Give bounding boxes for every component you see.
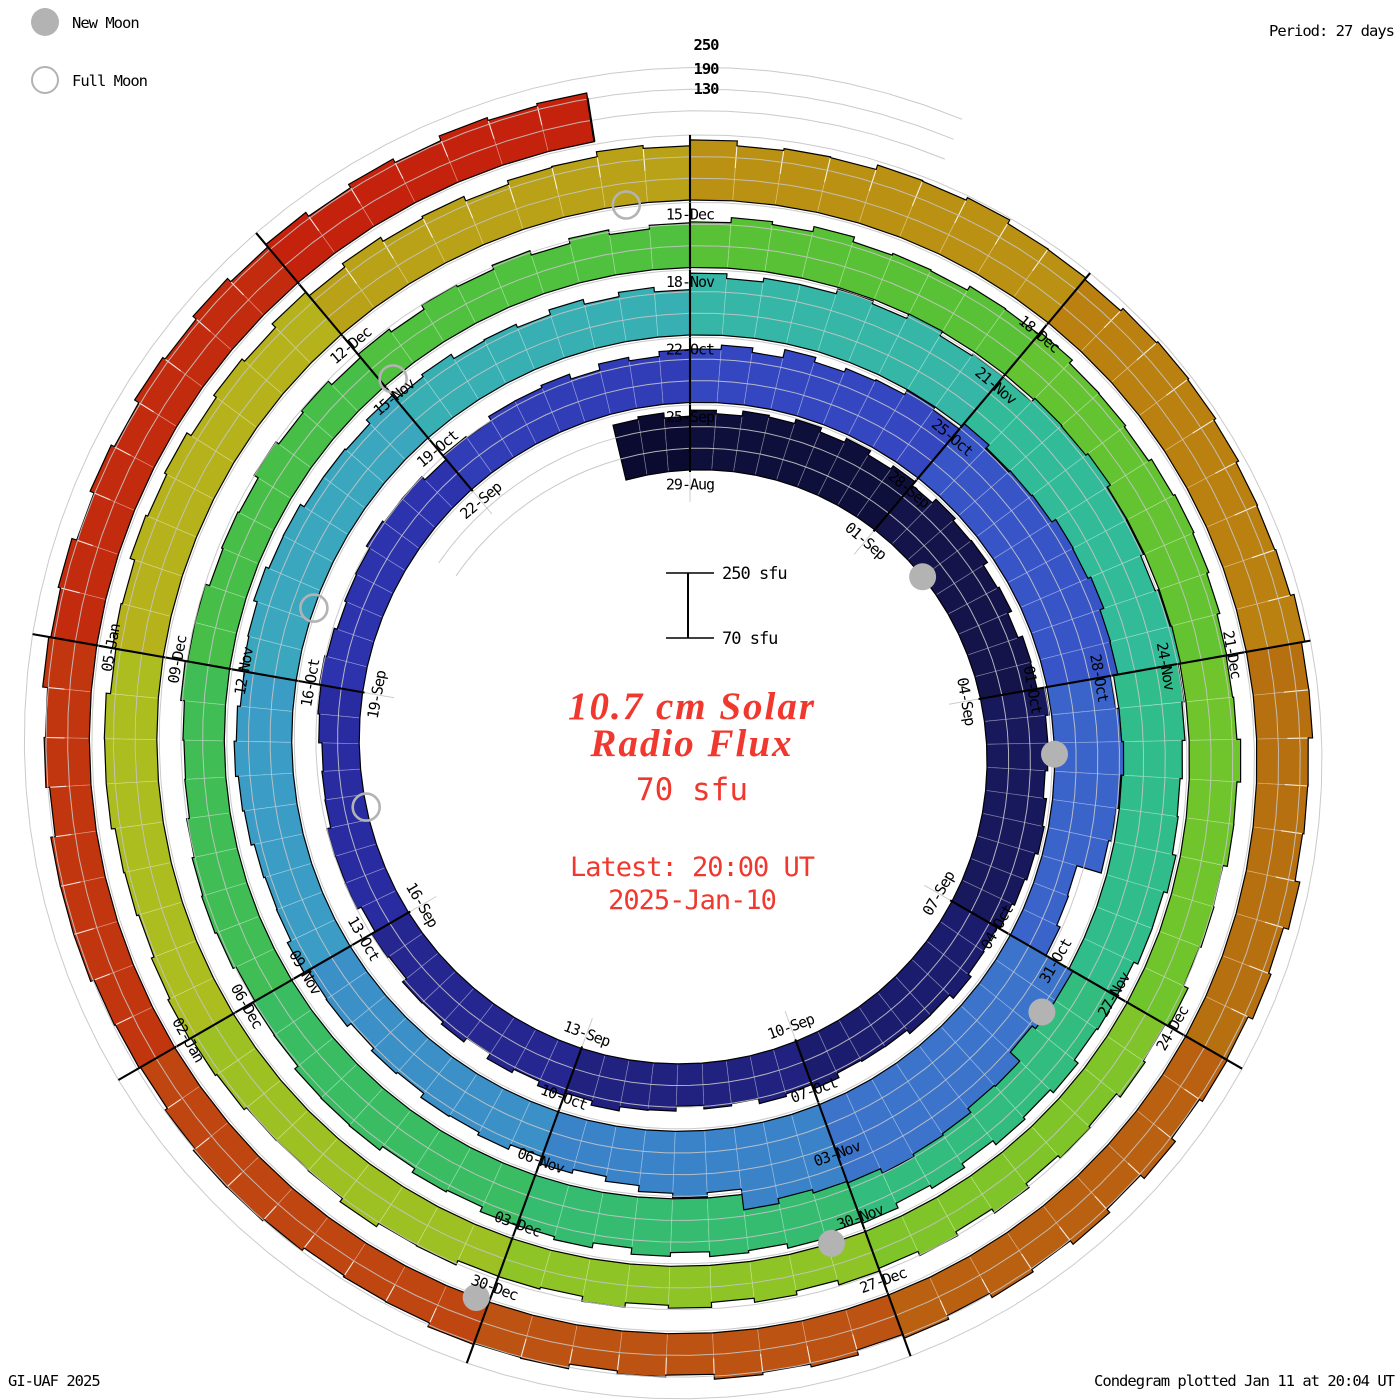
new-moon-legend-label: New Moon xyxy=(72,14,139,32)
flux-bar xyxy=(185,777,230,818)
date-label-25-Sep: 25-Sep xyxy=(666,408,715,426)
flux-bar xyxy=(690,140,737,201)
period-label: Period: 27 days xyxy=(1269,22,1394,40)
current-flux-value: 70 sfu xyxy=(342,772,1042,808)
radial-axis-label-130: 130 xyxy=(646,80,766,98)
flux-bar xyxy=(631,1197,673,1256)
flux-bar xyxy=(733,146,784,205)
flux-bar xyxy=(1122,741,1183,779)
center-text-block: 10.7 cm Solar Radio Flux 70 sfu Latest: … xyxy=(342,688,1042,916)
flux-bar xyxy=(104,693,158,740)
full-moon-icon xyxy=(31,66,59,94)
flux-bar xyxy=(1253,690,1312,739)
flux-bar xyxy=(750,1255,797,1303)
date-label-29-Aug: 29-Aug xyxy=(666,476,714,494)
scale-key-min-label: 70 sfu xyxy=(722,629,777,649)
new-moon-marker-2024-12-01 xyxy=(818,1230,845,1257)
new-moon-marker-2024-09-03 xyxy=(909,563,936,590)
flux-bar xyxy=(609,229,652,275)
flux-bar xyxy=(234,741,293,776)
flux-bar xyxy=(569,1325,622,1371)
flux-bar xyxy=(1119,702,1185,741)
flux-bar xyxy=(671,1198,710,1253)
flux-bar xyxy=(184,740,226,779)
flux-bar xyxy=(236,706,292,742)
full-moon-legend-label: Full Moon xyxy=(72,72,147,90)
flux-bar xyxy=(106,781,163,829)
flux-scale-key: 250 sfu 70 sfu xyxy=(640,560,900,655)
flux-bar xyxy=(710,1262,754,1303)
new-moon-marker-2024-10-02 xyxy=(1041,741,1068,768)
flux-bar xyxy=(643,146,690,203)
latest-time-label: Latest: 20:00 UT xyxy=(342,852,1042,883)
radial-axis-label-250: 250 xyxy=(646,36,766,54)
chart-title-line1: 10.7 cm Solar xyxy=(342,688,1042,725)
new-moon-marker-2024-11-01 xyxy=(1028,999,1055,1026)
flux-bar xyxy=(666,1333,715,1375)
flux-bar xyxy=(105,739,159,784)
radial-axis-label-190: 190 xyxy=(646,60,766,78)
flux-bar xyxy=(673,1131,708,1198)
scale-key-max-label: 250 sfu xyxy=(722,564,787,584)
latest-date-label: 2025-Jan-10 xyxy=(342,885,1042,916)
date-label-22-Oct: 22-Oct xyxy=(666,341,714,359)
flux-bar xyxy=(50,785,97,837)
flux-bar xyxy=(690,222,731,268)
date-label-18-Nov: 18-Nov xyxy=(666,273,715,291)
plotted-timestamp-label: Condegram plotted Jan 11 at 20:04 UT xyxy=(1094,1372,1394,1390)
new-moon-icon xyxy=(31,8,59,36)
date-label-15-Dec: 15-Dec xyxy=(666,206,714,224)
condegram-page: 29-Aug01-Sep04-Sep07-Sep10-Sep13-Sep16-S… xyxy=(0,0,1400,1400)
flux-bar xyxy=(625,1264,670,1305)
chart-title-line2: Radio Flux xyxy=(342,725,1042,762)
credit-label: GI-UAF 2025 xyxy=(8,1372,100,1390)
